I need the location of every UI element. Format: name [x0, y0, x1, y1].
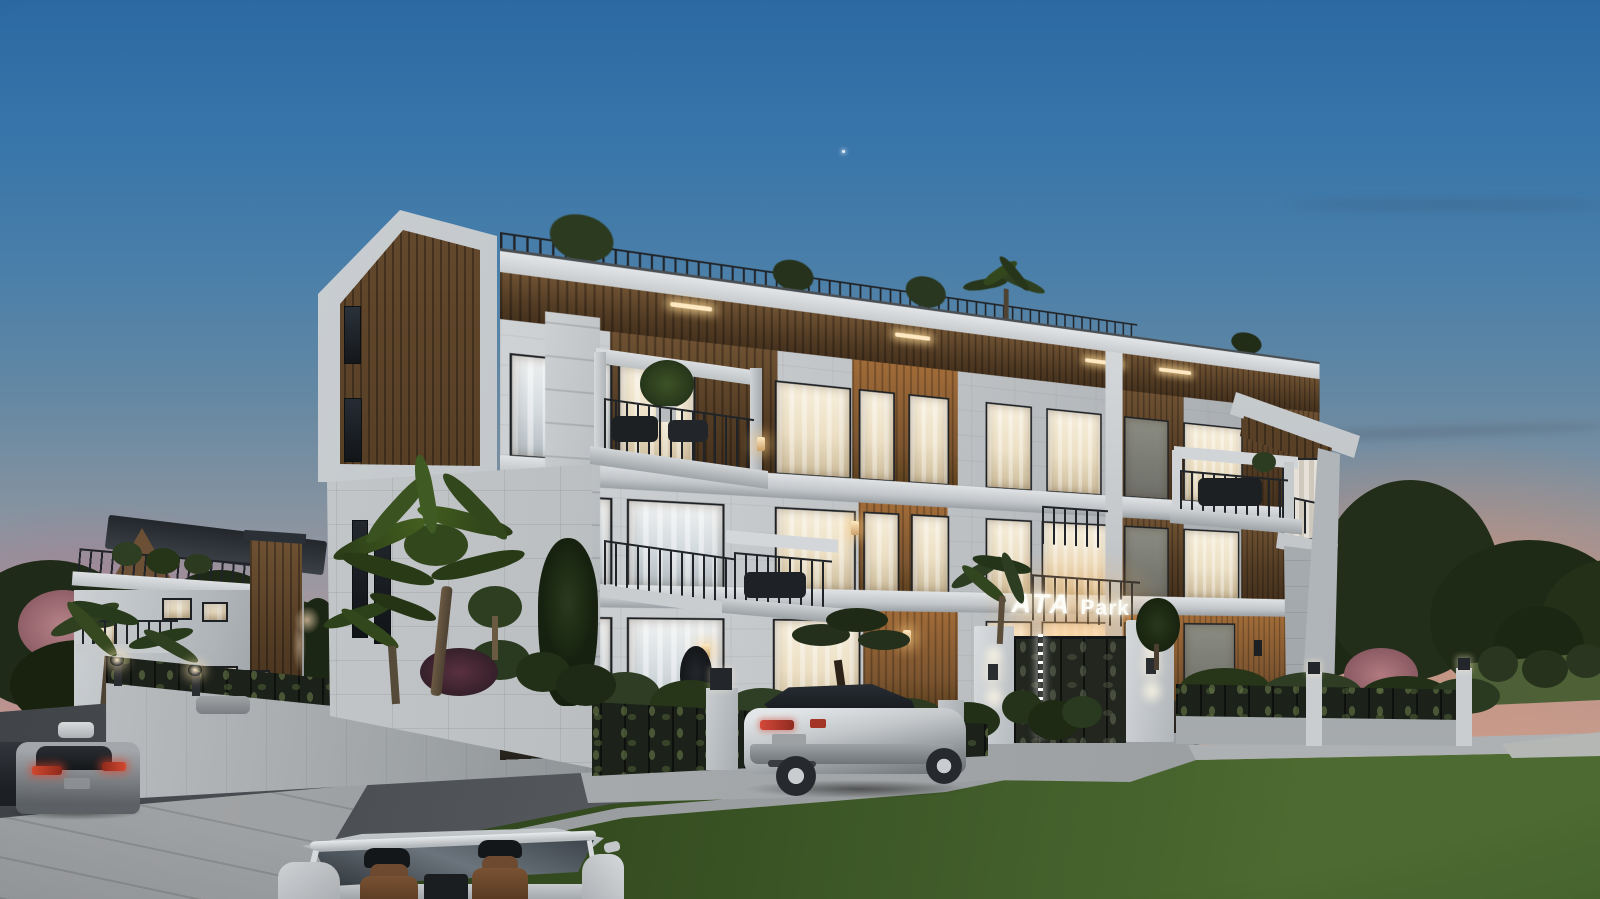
convertible-fender — [278, 862, 340, 899]
palm-trunk — [1004, 288, 1009, 322]
seat-back — [360, 876, 418, 899]
balcony-potted-tree — [640, 360, 694, 408]
wall-sconce-light — [757, 437, 765, 451]
coupe-license-plate — [64, 778, 90, 789]
pillar-sconce — [988, 664, 998, 680]
fence-pillar-lamp — [1458, 658, 1470, 670]
distant-parked-car — [196, 696, 250, 714]
patio-furniture — [612, 416, 658, 442]
balcony-potted-plant — [1252, 452, 1276, 472]
bonsai-canopy — [826, 608, 888, 632]
seat-back — [472, 868, 528, 899]
window — [859, 389, 895, 482]
window — [986, 402, 1032, 491]
tree-trunk — [1154, 644, 1159, 670]
patio-furniture — [744, 572, 806, 598]
coupe-taillight — [32, 766, 62, 775]
window — [1124, 416, 1169, 500]
window — [863, 511, 899, 592]
fence-pillar — [1456, 668, 1472, 746]
side-mirror — [603, 840, 621, 853]
window — [911, 514, 949, 594]
fence-pillar — [1306, 672, 1322, 746]
unlit-sconce — [1254, 640, 1262, 656]
gable-window — [344, 398, 362, 462]
suv-rear-wheel — [776, 756, 816, 796]
suv-taillight — [810, 719, 826, 728]
convertible — [272, 812, 624, 899]
suv — [742, 682, 974, 802]
sconce-light-beam — [1139, 676, 1165, 706]
entrance-shrub — [1062, 696, 1102, 728]
small-tree-trunk — [492, 616, 498, 660]
convertible-fender — [582, 854, 624, 899]
shrub — [556, 664, 616, 706]
suv-front-wheel — [926, 748, 962, 784]
window — [775, 380, 851, 479]
patio-furniture — [1198, 478, 1262, 506]
fence-pillar-lamp — [710, 668, 732, 690]
fence-pillar-lamp — [1308, 662, 1320, 674]
patio-furniture — [668, 420, 708, 442]
bonsai-canopy — [858, 630, 910, 650]
architectural-rendering: ATAPark — [0, 0, 1600, 899]
recessed-railing — [1042, 506, 1108, 549]
window — [908, 394, 949, 486]
suv-taillight — [760, 720, 794, 730]
recessed-door — [1046, 408, 1101, 496]
distant-parked-car — [58, 722, 94, 738]
wall-sconce-light — [851, 521, 859, 535]
gable-window — [344, 306, 361, 364]
fence-pillar — [706, 688, 738, 770]
window — [1184, 529, 1240, 600]
coupe-taillight — [102, 762, 126, 771]
sign-suffix-text: Park — [1080, 596, 1130, 621]
center-console — [424, 874, 468, 899]
